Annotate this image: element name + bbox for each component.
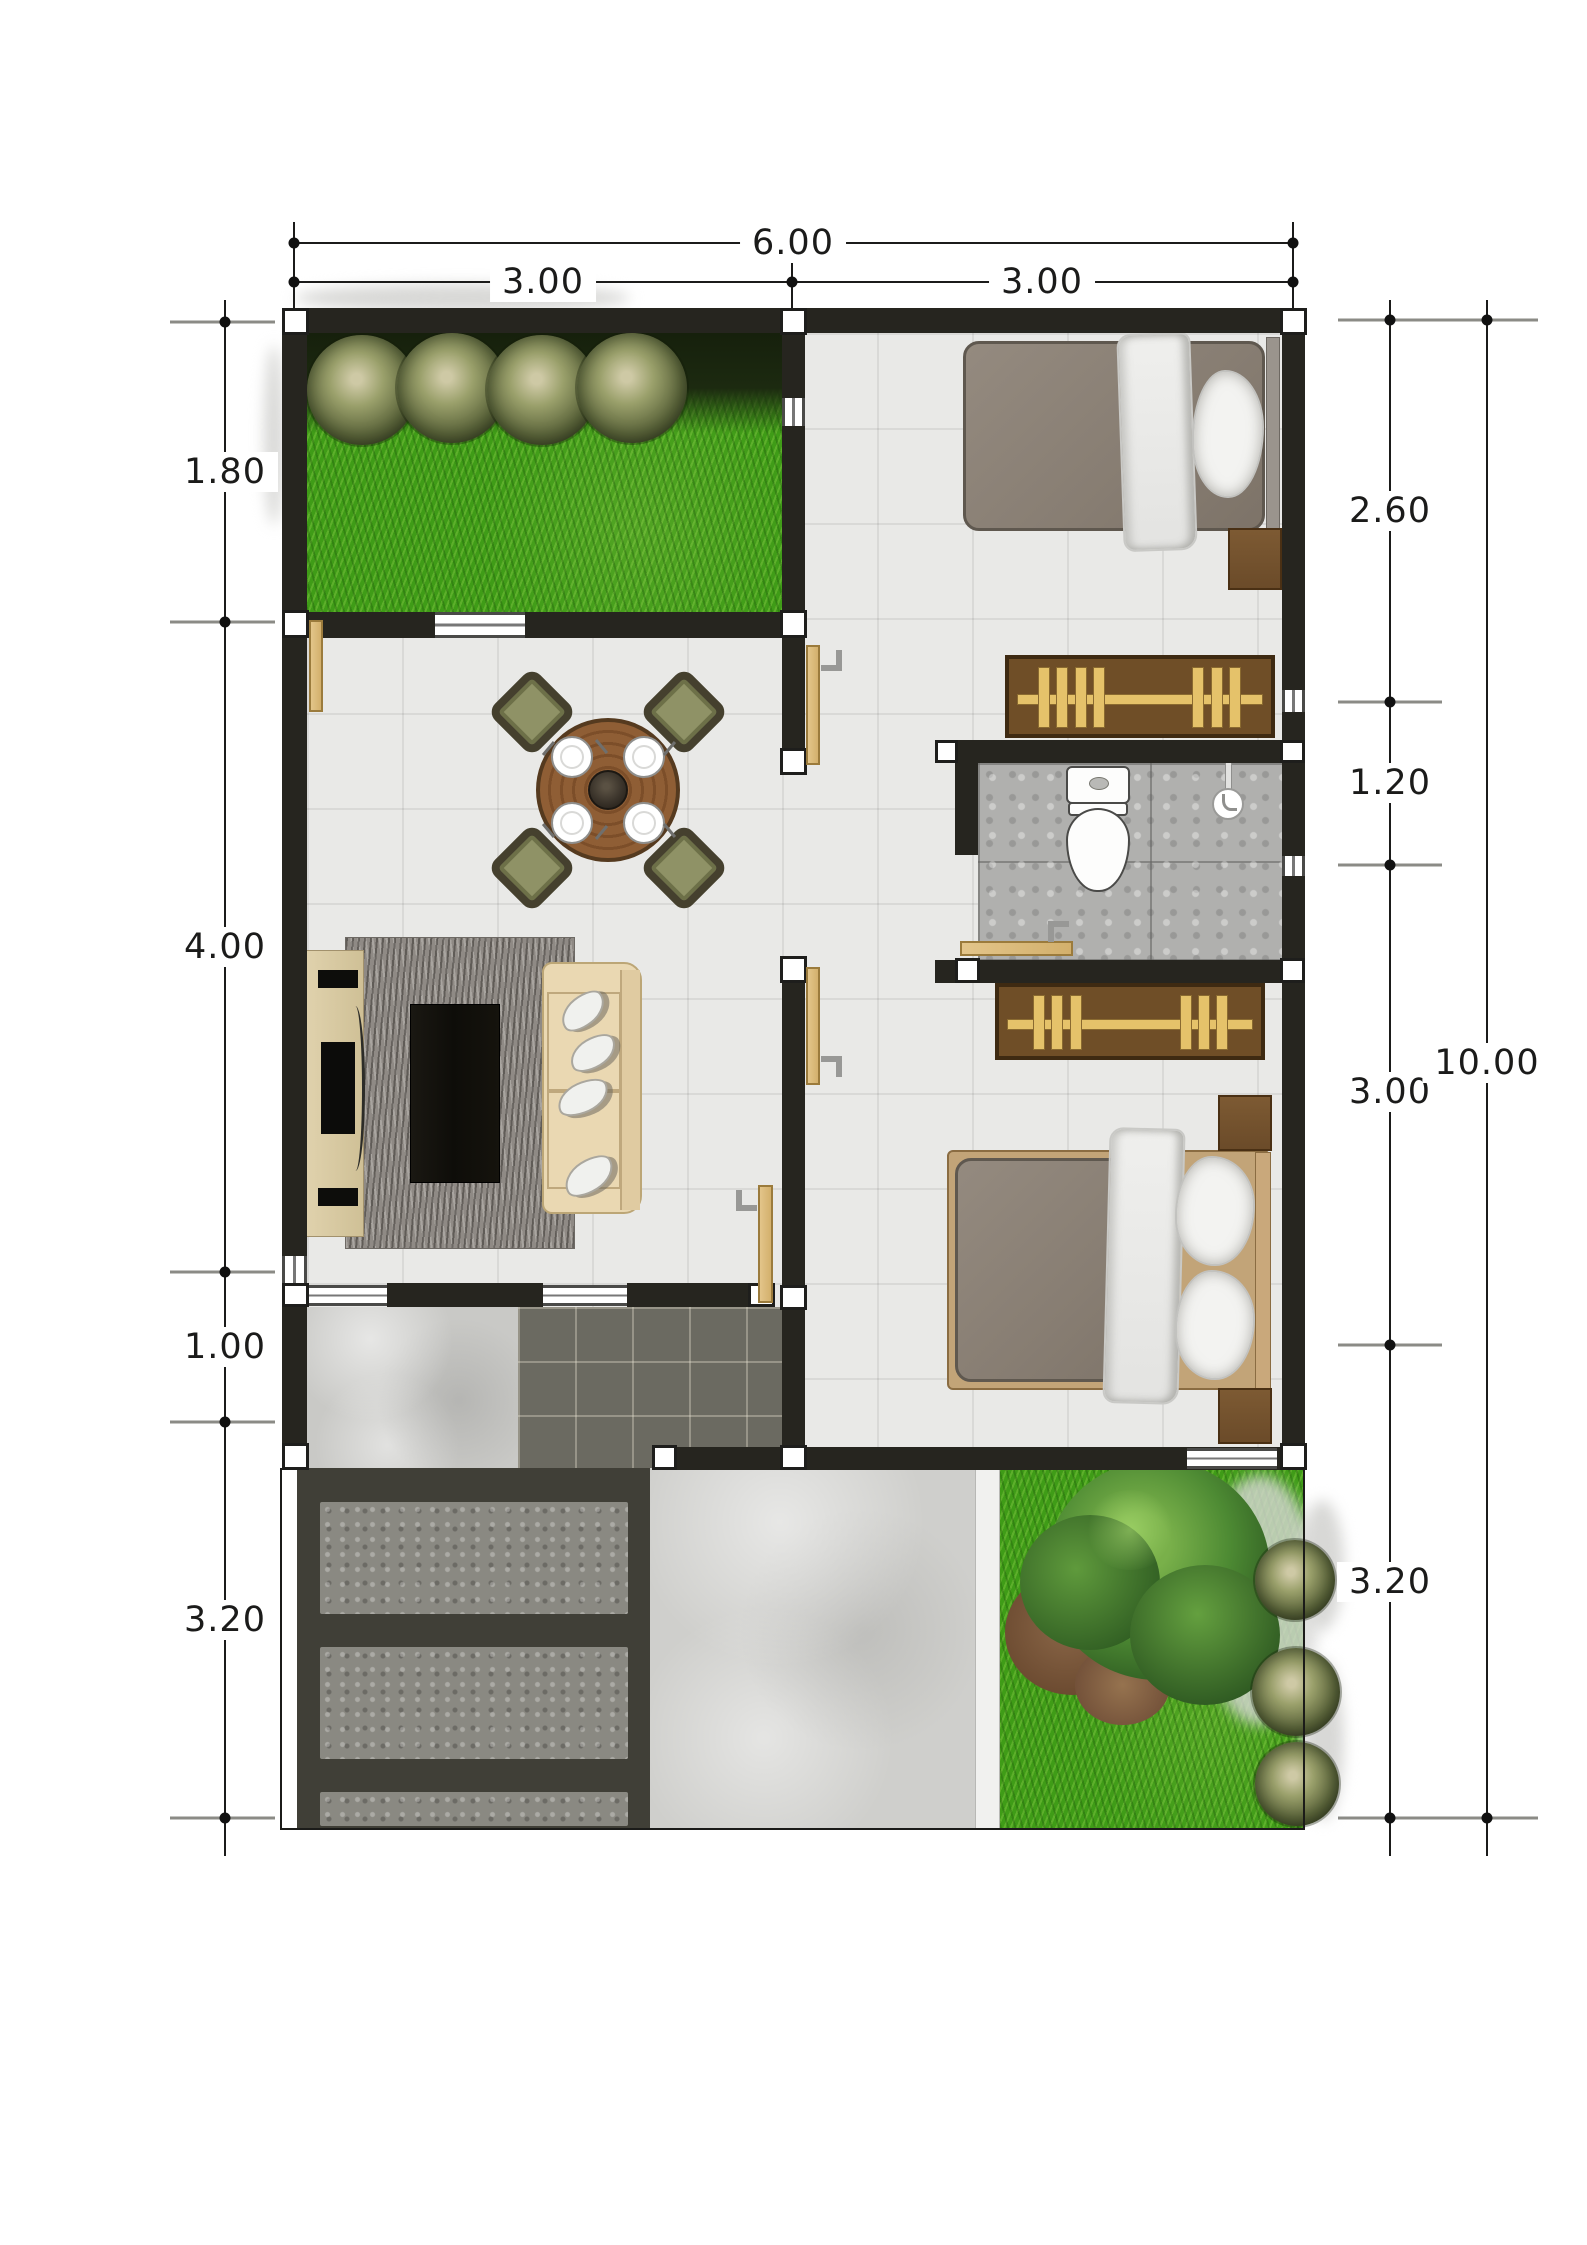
speaker-icon [318,970,358,988]
dim-tick-dot [220,617,231,628]
wall-central [782,983,805,1285]
wall-bathroom-west [955,763,978,855]
wardrobe-icon [1005,655,1275,738]
headboard [1266,337,1280,535]
hanger-icon [1211,667,1223,728]
window-icon [1282,856,1305,876]
door-handle-icon [821,1056,842,1077]
hanger-icon [1229,667,1241,728]
dim-tick-dot [1385,1340,1396,1351]
tree-highlight [1085,1490,1175,1570]
shower-hook [1222,794,1237,811]
column [282,308,309,335]
window-icon [305,1285,387,1306]
hanger-icon [1075,667,1087,728]
wall-living-south [387,1283,543,1307]
hanger-icon [1216,995,1228,1051]
dim-tick-dot [220,317,231,328]
dim-extension [293,222,295,308]
column [282,1443,309,1470]
door-icon [806,645,820,765]
wall-central [782,1310,805,1447]
nightstand-icon [1218,1095,1272,1151]
toilet-button [1089,777,1109,790]
dim-label-right-2: 1.20 [1337,763,1443,803]
wall-bathroom-south [935,960,1282,983]
paving-pad [320,1502,628,1614]
hand-shower-icon [1208,762,1248,822]
door-icon [960,941,1073,956]
column [780,748,807,775]
column [282,1283,309,1307]
tv-console-icon [305,950,364,1237]
dim-tick-dot [1385,1813,1396,1824]
console-arc [346,1006,365,1171]
window-icon [543,1285,627,1306]
nightstand-icon [1218,1388,1272,1444]
column [652,1445,677,1470]
shrub-icon [577,333,687,443]
foliage-shadow [264,345,284,525]
headboard [1255,1152,1271,1390]
column [780,1445,807,1470]
hanger-icon [1038,667,1050,728]
column [780,308,807,335]
dim-label-top-left: 3.00 [490,262,596,302]
dim-tick-dot [289,277,300,288]
dim-label-right-4: 3.20 [1337,1562,1443,1602]
coffee-table-icon [410,1004,500,1183]
wall-living-south [627,1283,750,1307]
dim-label-left-1: 1.80 [172,452,278,492]
dim-tick-dot [220,1813,231,1824]
window-icon [1282,690,1305,712]
wardrobe-icon [995,983,1265,1060]
column [282,610,309,638]
plate-icon [551,802,593,844]
dim-tick-dot [289,238,300,249]
hanger-icon [1070,995,1082,1051]
dim-tick-dot [220,1417,231,1428]
plot-boundary [1303,1468,1305,1830]
door-icon [806,967,820,1085]
dim-tick-dot [1288,238,1299,249]
plot-boundary [280,1828,1305,1830]
dim-tick-dot [1385,697,1396,708]
paving-pad [320,1647,628,1759]
wall-central [782,636,805,750]
dim-label-left-3: 1.00 [172,1327,278,1367]
column [1280,958,1305,983]
plate-icon [623,736,665,778]
hanger-icon [1033,995,1045,1051]
shrub-icon [1255,1540,1335,1620]
dim-label-top-total: 6.00 [740,223,846,263]
dim-label-left-2: 4.00 [172,927,278,967]
floor-plan-canvas: 6.00 3.00 3.00 1.80 4.00 1.00 3.20 2.60 … [0,0,1587,2245]
column [935,740,958,763]
door-handle-icon [736,1190,757,1211]
column [780,1285,807,1310]
door-icon [758,1185,773,1303]
column [1280,1443,1307,1470]
terrace [518,1307,782,1468]
dim-tick-dot [1482,1813,1493,1824]
hanger-icon [1192,667,1204,728]
hanger-icon [1093,667,1105,728]
dim-tick-dot [1385,860,1396,871]
plot-boundary [280,1468,282,1830]
hanger-icon [1056,667,1068,728]
toilet-bowl [1066,808,1130,892]
hanger-icon [1051,995,1063,1051]
hanger-icon [1180,995,1192,1051]
dim-tick-dot [1385,315,1396,326]
window-icon [435,612,525,638]
serving-bowl-icon [588,770,628,810]
door-handle-icon [1048,921,1069,942]
hanger-icon [1198,995,1210,1051]
toilet-icon [1064,764,1134,894]
wardrobe-rail [1017,694,1263,705]
column [1280,308,1307,335]
wall-right [1282,333,1305,1470]
column [780,610,807,638]
window-icon [782,398,805,426]
blanket-icon [1102,1127,1185,1405]
dim-label-top-right: 3.00 [989,262,1095,302]
column [955,958,980,983]
dim-tick-dot [1482,315,1493,326]
wall-garden [307,612,782,638]
dim-extension [1292,222,1294,308]
column [780,956,807,983]
nightstand-icon [1228,528,1282,590]
dim-label-right-1: 2.60 [1337,491,1443,531]
paving-pad [320,1792,628,1826]
shrub-icon [1252,1648,1340,1736]
porch-concrete [307,1307,518,1468]
dim-tick-dot [220,1267,231,1278]
wall-central [782,333,805,610]
tree-icon [990,1455,1310,1775]
window-icon [1187,1448,1277,1469]
dim-label-left-4: 3.20 [172,1600,278,1640]
door-icon [309,620,323,712]
dim-label-right-total: 10.00 [1422,1043,1551,1083]
speaker-icon [318,1188,358,1206]
shrub-icon [1255,1742,1339,1826]
plate-icon [551,736,593,778]
blanket-icon [1116,332,1198,552]
dim-tick-dot [787,277,798,288]
column [1280,740,1305,763]
wall-bathroom-north [935,740,1282,763]
sofa-backrest [620,970,640,1210]
door-handle-icon [821,650,842,671]
plate-icon [623,802,665,844]
side-path [650,1468,975,1828]
dim-tick-dot [1288,277,1299,288]
window-icon [282,1256,307,1284]
